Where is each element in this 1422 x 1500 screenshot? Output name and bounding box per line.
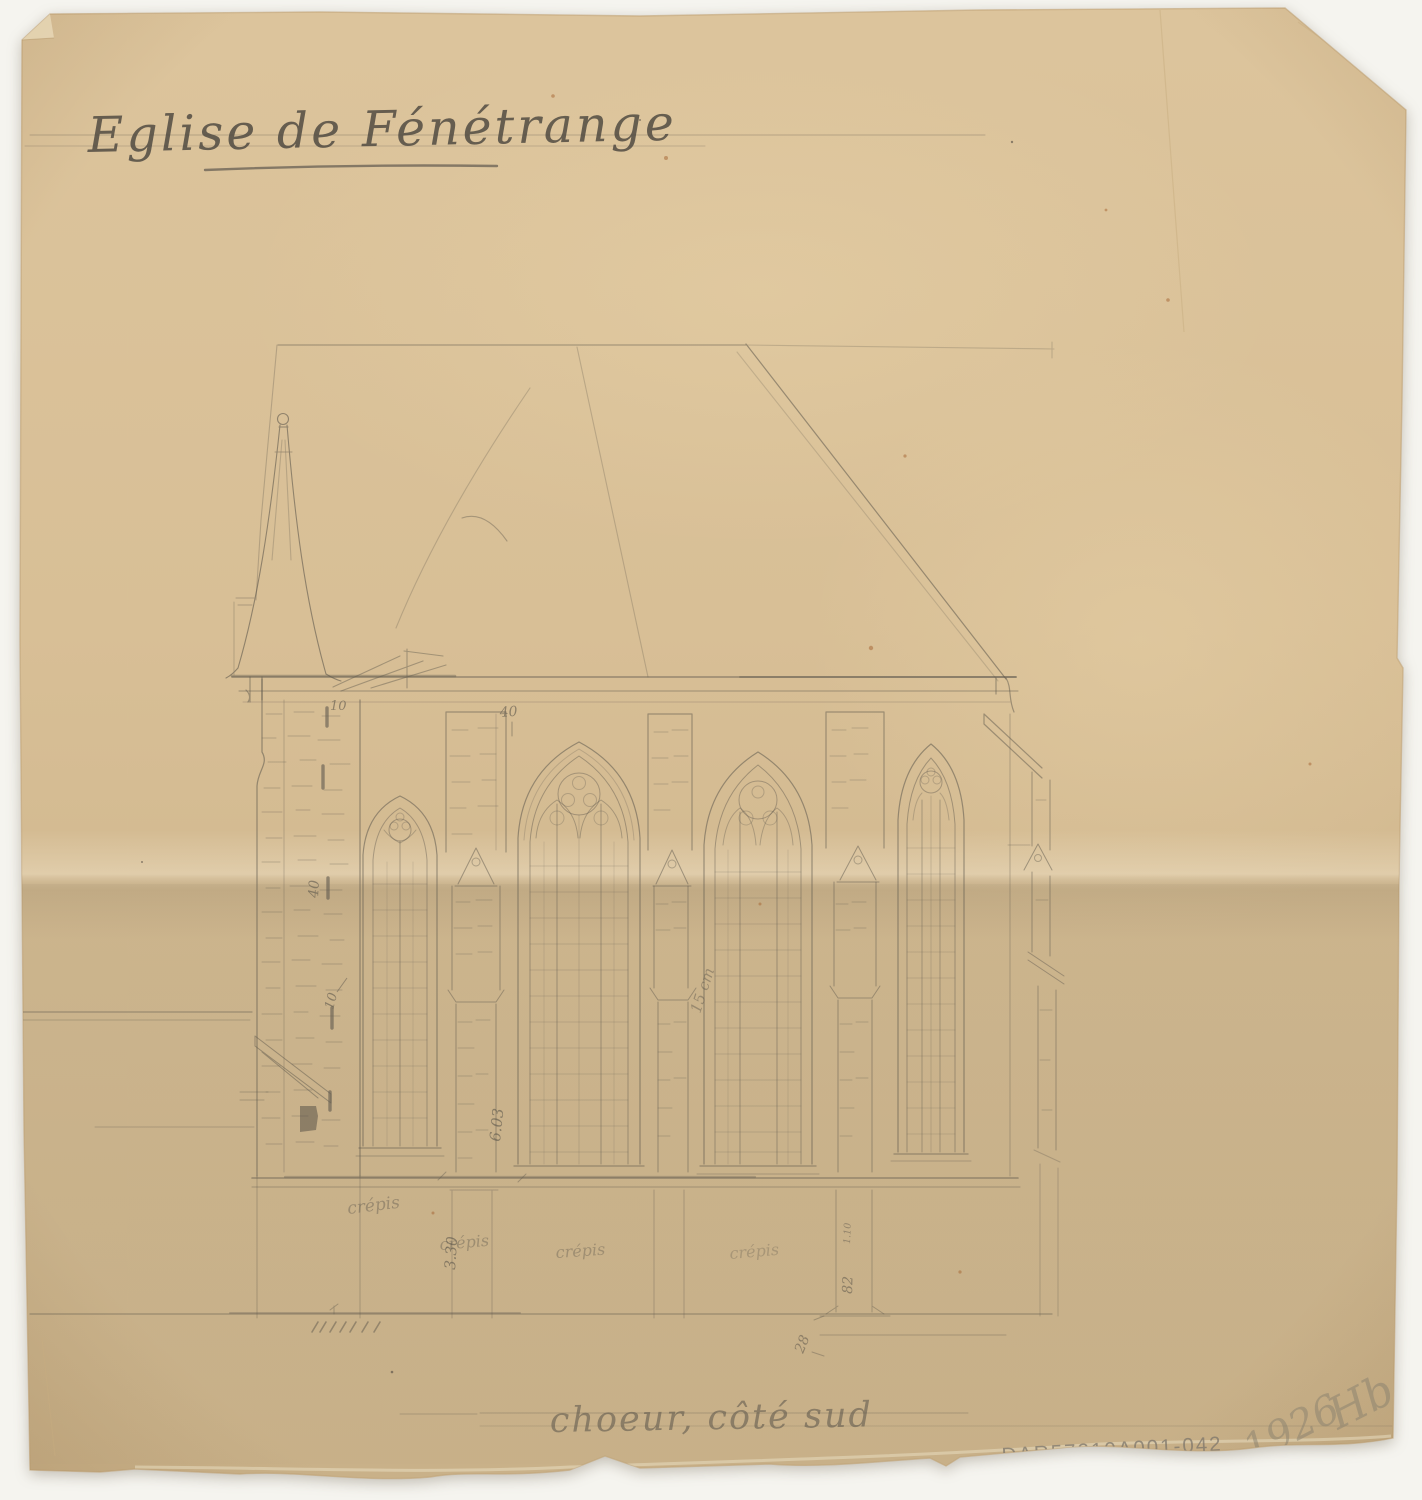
annotation-110: 1.10 [842,1223,854,1245]
caption-text: choeur, côté sud [549,1395,873,1441]
annotation-eaves-40: 40 [498,704,518,721]
scan-viewport: Eglise de Fénétrange choeur, côté sud DA… [0,0,1422,1500]
annotation-eaves-10: 10 [330,699,347,714]
annotation-603: 6.03 [486,1107,507,1142]
dog-ear-fold [22,14,54,40]
paper-texture [20,8,1422,1478]
annotation-crepis-3: crépis [555,1240,606,1262]
annotation-tower-40: 40 [306,879,323,899]
dark-patch [300,1106,318,1132]
drawing-canvas: Eglise de Fénétrange choeur, côté sud DA… [0,0,1422,1500]
annotation-82: 82 [840,1276,857,1294]
